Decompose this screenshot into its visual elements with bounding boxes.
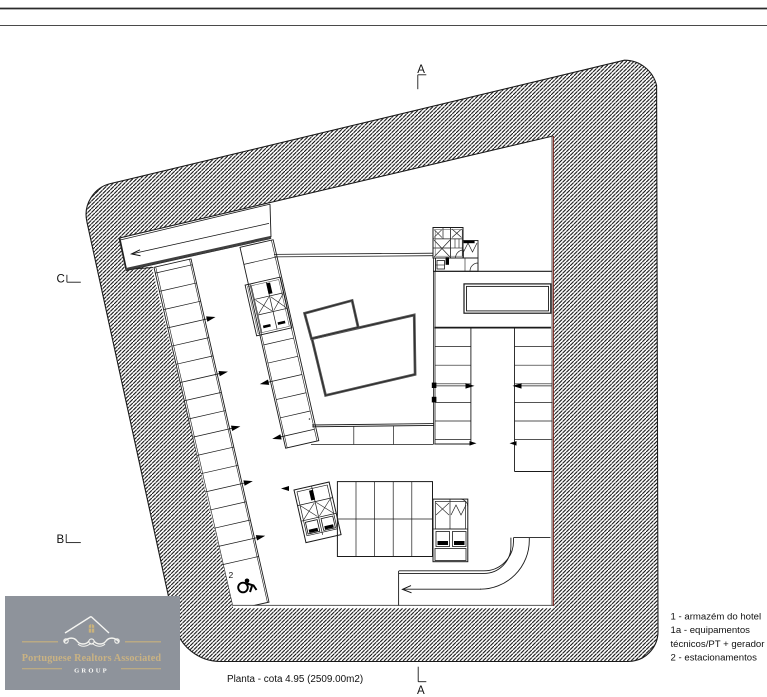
- svg-text:A: A: [417, 685, 425, 697]
- svg-text:2 - estacionamentos: 2 - estacionamentos: [671, 653, 758, 664]
- svg-text:A: A: [417, 64, 425, 76]
- svg-text:1a - equipamentos: 1a - equipamentos: [671, 625, 751, 636]
- svg-text:Portuguese Realtors Associated: Portuguese Realtors Associated: [22, 653, 162, 664]
- svg-text:1 - armazém do hotel: 1 - armazém do hotel: [671, 612, 762, 623]
- svg-text:B: B: [57, 534, 65, 546]
- svg-text:C: C: [57, 274, 65, 286]
- svg-text:técnicos/PT + gerador: técnicos/PT + gerador: [671, 639, 766, 650]
- svg-text:Planta - cota 4.95 (2509.00m2): Planta - cota 4.95 (2509.00m2): [227, 674, 363, 685]
- svg-text:GROUP: GROUP: [74, 667, 109, 674]
- svg-text:2: 2: [229, 570, 234, 580]
